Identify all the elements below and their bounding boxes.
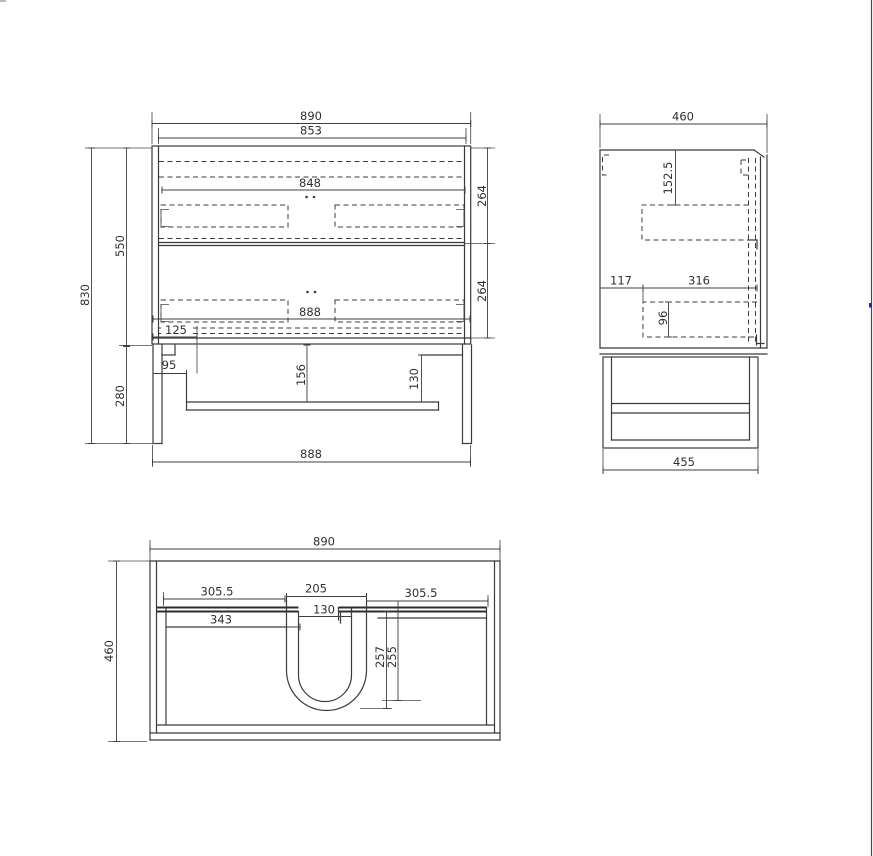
side-view-dimensions: 460 152.5 117 316 96 455: [600, 110, 767, 475]
dim-plan-overall-depth: 460: [102, 640, 116, 662]
front-view-dimensions: 890 853 848 888 125 95 888 830 550 280 2…: [78, 109, 495, 467]
dim-plan-overall-width: 890: [313, 535, 335, 549]
dim-front-bracket-height: 130: [407, 368, 421, 390]
dim-plan-cutout-depth-inner: 255: [385, 646, 399, 668]
dim-front-upper-drawer-height: 264: [475, 185, 489, 207]
plan-view: 890 460 305.5 205 305.5 130 343 257 255: [102, 535, 500, 742]
dim-front-carcass-width: 853: [300, 124, 322, 138]
dim-plan-right-offset: 305.5: [405, 586, 438, 600]
dim-plan-cutout-inner-width: 130: [313, 603, 335, 617]
vanity-technical-drawing: 890 853 848 888 125 95 888 830 550 280 2…: [0, 0, 873, 856]
dim-front-top-inner-width: 848: [299, 176, 321, 190]
dim-side-overall-depth: 460: [672, 110, 694, 124]
plan-view-dimensions: 890 460 305.5 205 305.5 130 343 257 255: [102, 535, 500, 742]
dim-side-top-offset: 152.5: [661, 162, 675, 195]
page-edge-artifacts: [0, 0, 872, 856]
dim-side-back-offset: 117: [610, 274, 632, 288]
dim-front-leg-frame-height: 280: [113, 385, 127, 407]
dim-front-lower-drawer-height: 264: [475, 280, 489, 302]
side-view: 460 152.5 117 316 96 455: [600, 110, 767, 475]
front-view: 890 853 848 888 125 95 888 830 550 280 2…: [78, 109, 495, 467]
dim-front-leg-offset: 95: [162, 358, 177, 372]
dim-front-bottom-inset: 125: [165, 323, 187, 337]
dim-side-drawer-box-height: 96: [656, 311, 670, 326]
dim-plan-left-offset: 305.5: [201, 585, 234, 599]
dim-front-overall-height: 830: [78, 284, 92, 306]
side-view-linework: [600, 150, 767, 448]
front-view-linework: [152, 146, 472, 444]
dim-front-rail-drop: 156: [294, 364, 308, 386]
dim-front-drawer-width: 888: [299, 305, 321, 319]
dim-side-drawer-depth: 316: [688, 274, 710, 288]
dim-plan-cutout-width: 205: [305, 582, 327, 596]
dim-plan-left-inner-offset: 343: [210, 613, 232, 627]
dim-front-base-width: 888: [300, 447, 322, 461]
dim-front-carcass-height: 550: [113, 235, 127, 257]
dim-side-base-depth: 455: [673, 455, 695, 469]
dim-front-overall-width: 890: [300, 109, 322, 123]
